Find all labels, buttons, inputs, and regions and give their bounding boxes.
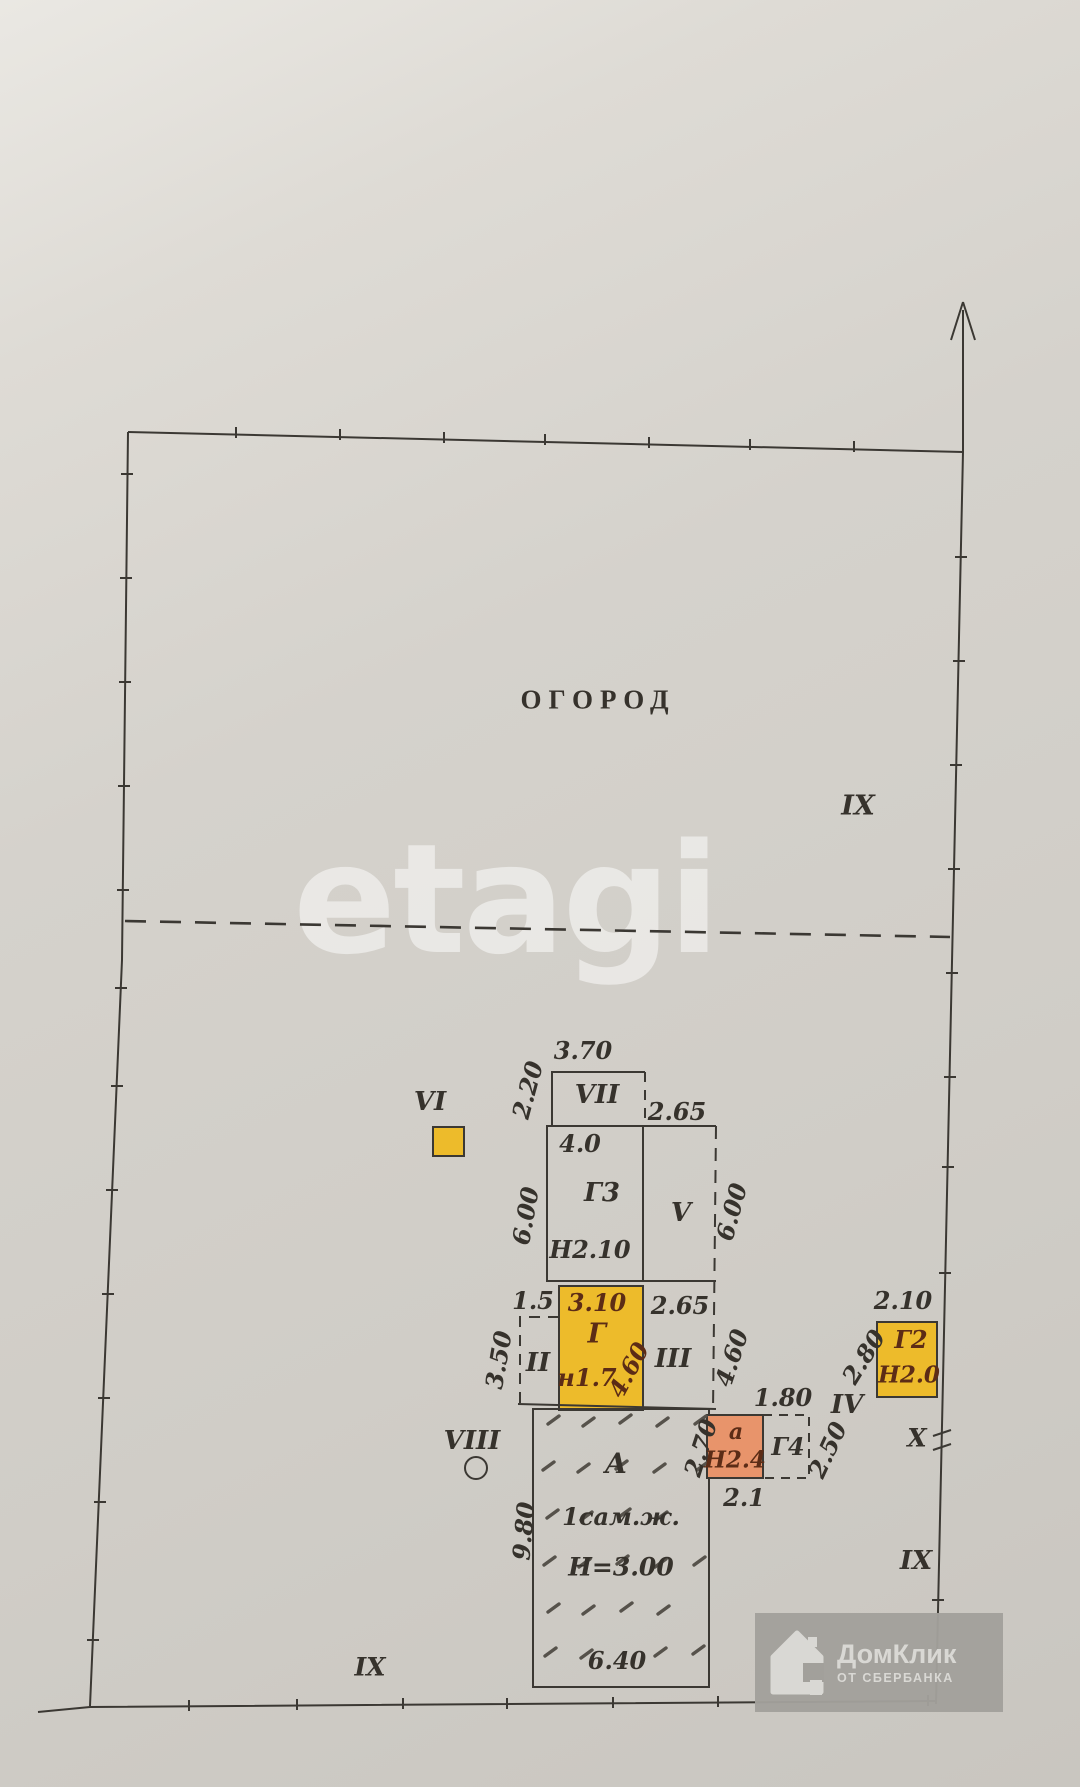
garden-label: ОГОРОД bbox=[520, 685, 675, 716]
section-v-label: V bbox=[671, 1200, 691, 1226]
section-ix-upper-label: IX bbox=[841, 793, 875, 820]
site-plan-scan: etagi bbox=[0, 0, 1080, 1787]
dim-a-width-label: 6.40 bbox=[588, 1649, 646, 1673]
point-viii-marker bbox=[465, 1457, 487, 1479]
boundary-right bbox=[936, 310, 963, 1704]
building-a-ext-height-mark: Н2.4 bbox=[704, 1449, 766, 1472]
building-g2-label: Г2 bbox=[894, 1328, 927, 1352]
dim-vii-width-label: 3.70 bbox=[554, 1039, 612, 1063]
building-a-ext-label: а bbox=[729, 1421, 743, 1443]
dim-g2-top-width-label: 2.10 bbox=[874, 1289, 932, 1313]
dim-g-width-label: 3.10 bbox=[568, 1291, 626, 1315]
building-a-type-mark: 1сам.ж. bbox=[562, 1505, 680, 1529]
point-x-label: Х bbox=[907, 1426, 926, 1451]
building-g4-label: Г4 bbox=[771, 1435, 804, 1459]
dim-v-top-width-label: 2.65 bbox=[648, 1100, 706, 1124]
section-vii-label: VII bbox=[575, 1082, 620, 1108]
dim-a-ext-bottom-label: 2.1 bbox=[723, 1486, 765, 1510]
dim-g4-top-width-label: 1.80 bbox=[754, 1386, 812, 1410]
building-g-label: Г bbox=[588, 1321, 607, 1348]
section-iii-label: III bbox=[655, 1346, 692, 1372]
building-g3-height-mark: Н2.10 bbox=[549, 1238, 630, 1262]
dim-g3-inner-width-label: 4.0 bbox=[559, 1132, 601, 1156]
domclick-title: ДомКлик bbox=[837, 1640, 956, 1668]
domclick-house-icon bbox=[770, 1630, 826, 1696]
domclick-watermark: ДомКлик ОТ СБЕРБАНКА bbox=[755, 1613, 1003, 1712]
dim-a-height-label: 9.80 bbox=[509, 1501, 538, 1561]
building-g2-height-mark: Н2.0 bbox=[878, 1364, 940, 1387]
building-g3-label: Г3 bbox=[584, 1180, 620, 1206]
boundary-left bbox=[90, 432, 128, 1706]
point-viii-label: VIII bbox=[444, 1428, 501, 1454]
dim-iii-top-width-label: 2.65 bbox=[651, 1294, 709, 1318]
section-ix-bottom-label: IX bbox=[354, 1655, 385, 1680]
plan-linework bbox=[0, 0, 1080, 1787]
domclick-subtitle: ОТ СБЕРБАНКА bbox=[837, 1671, 956, 1685]
point-vi-marker bbox=[433, 1127, 464, 1156]
plot-division-dashed-line bbox=[125, 921, 950, 937]
point-vi-label: VI bbox=[414, 1089, 446, 1115]
dim-g-offset-label: 1.5 bbox=[512, 1289, 554, 1313]
building-a-height-mark: Н=3.00 bbox=[568, 1555, 673, 1580]
section-ix-right-label: IX bbox=[900, 1548, 932, 1574]
section-ii-label: II bbox=[526, 1350, 550, 1376]
building-a-label: А bbox=[605, 1450, 628, 1478]
point-iv-label: IV bbox=[831, 1392, 863, 1418]
